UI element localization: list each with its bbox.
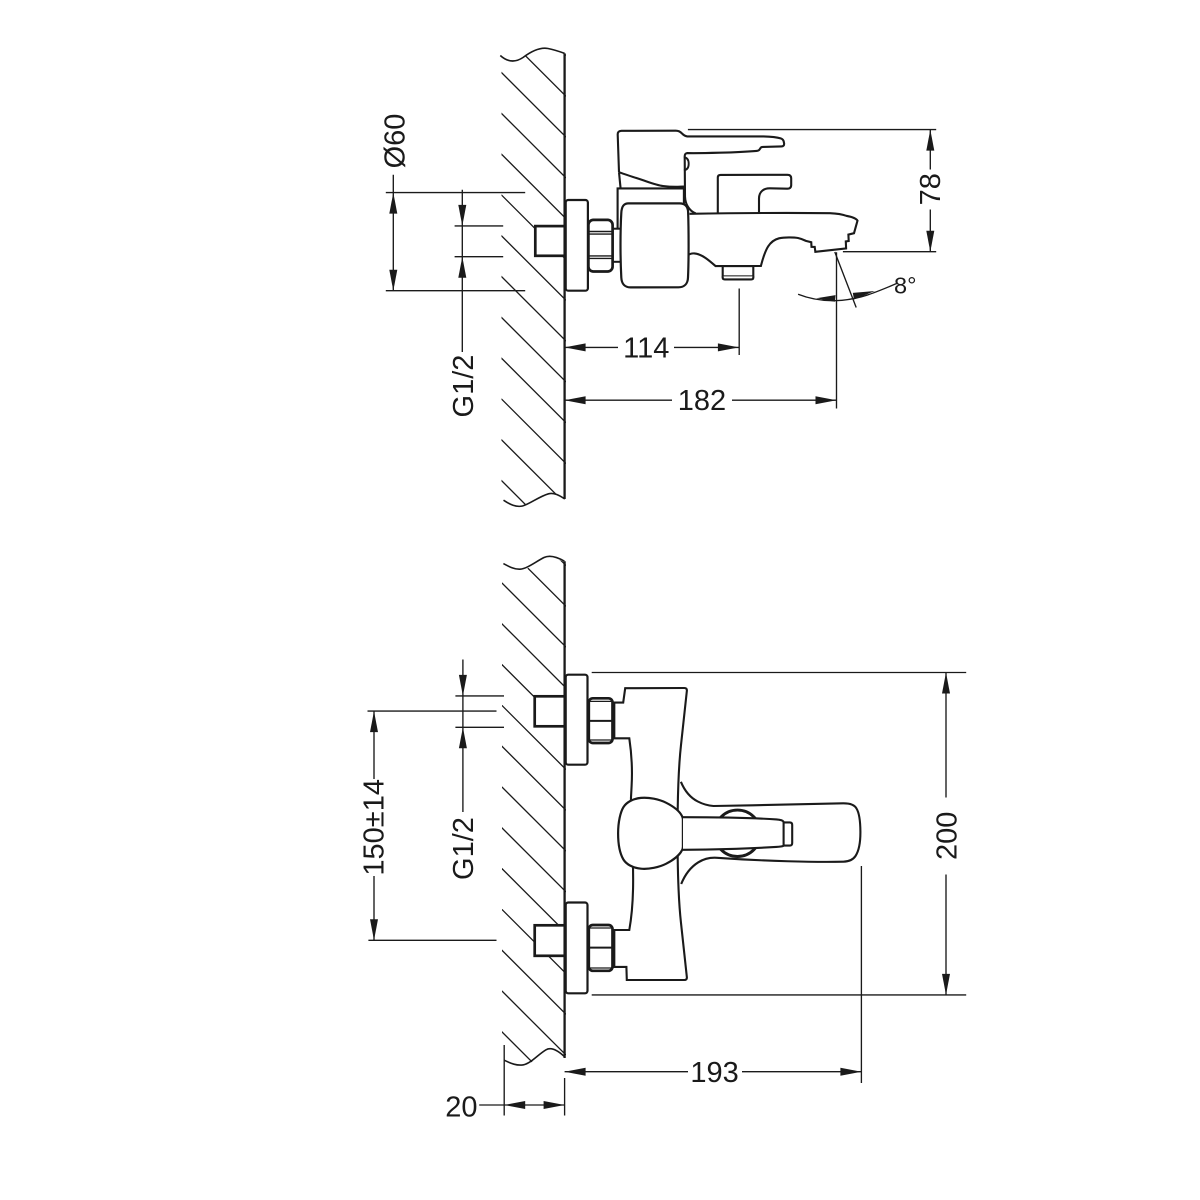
svg-text:193: 193	[690, 1057, 738, 1089]
svg-text:Ø60: Ø60	[380, 114, 412, 169]
svg-text:G1/2: G1/2	[448, 817, 480, 880]
svg-text:200: 200	[932, 812, 964, 860]
svg-text:20: 20	[445, 1092, 477, 1124]
svg-text:8°: 8°	[894, 273, 916, 299]
svg-text:G1/2: G1/2	[448, 355, 480, 418]
svg-text:114: 114	[623, 332, 669, 364]
svg-text:150±14: 150±14	[359, 779, 391, 876]
svg-text:78: 78	[915, 173, 947, 205]
svg-text:182: 182	[678, 385, 726, 417]
